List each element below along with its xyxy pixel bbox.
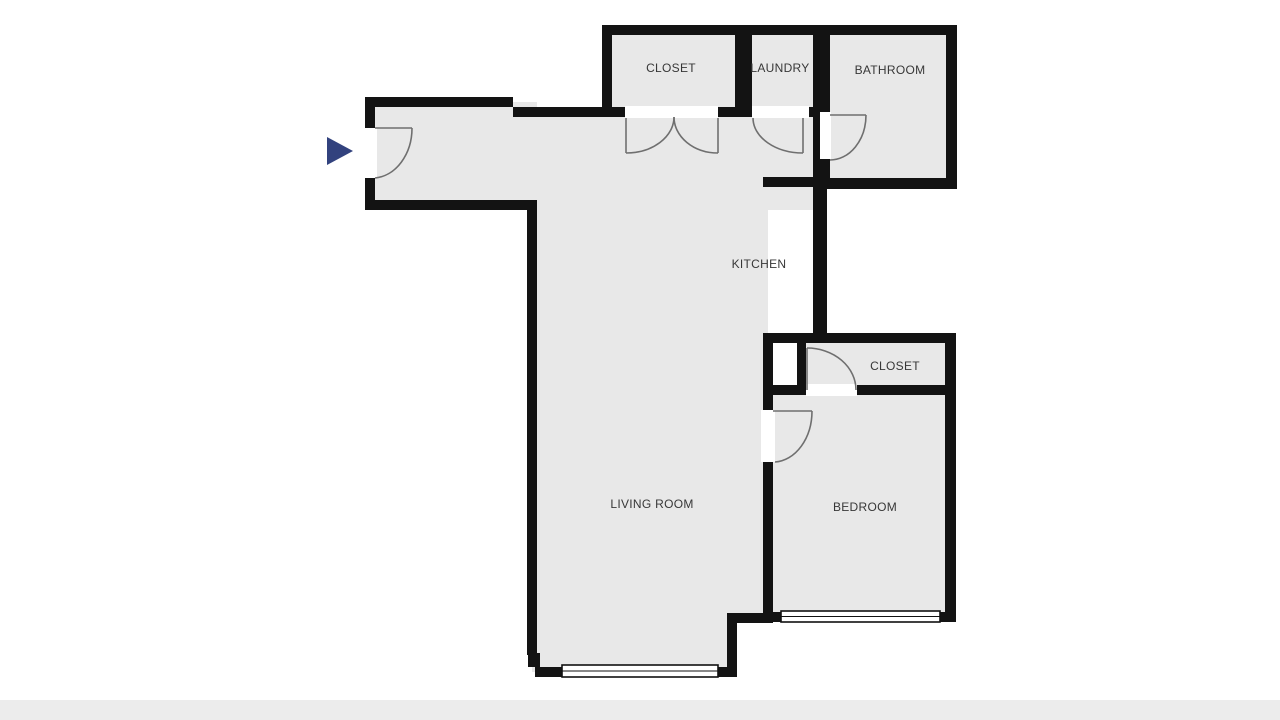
wall-entry-left-upper bbox=[365, 97, 375, 128]
label-closet-top: CLOSET bbox=[646, 61, 696, 75]
wall-bedroom-left bbox=[763, 333, 773, 622]
wall-entry-top-step bbox=[513, 107, 603, 117]
wall-living-bottom-left-step bbox=[528, 653, 540, 667]
door-gap-closet2 bbox=[806, 384, 857, 396]
wall-bathroom-top bbox=[820, 25, 957, 35]
label-bedroom: BEDROOM bbox=[833, 500, 897, 514]
wall-bedroom-right bbox=[945, 333, 956, 622]
wall-closet2-bottom bbox=[763, 385, 956, 395]
wall-laundry-bathroom-divider bbox=[813, 25, 830, 117]
label-laundry: LAUNDRY bbox=[750, 61, 809, 75]
label-kitchen: KITCHEN bbox=[732, 257, 787, 271]
label-closet-bedroom: CLOSET bbox=[870, 359, 920, 373]
door-gap-bathroom bbox=[820, 112, 831, 159]
door-gap-entry bbox=[363, 128, 377, 178]
door-gap-closet-top bbox=[625, 106, 718, 118]
wall-closet-left bbox=[602, 25, 612, 117]
footer-strip bbox=[0, 700, 1280, 720]
shaft-niche bbox=[773, 343, 797, 385]
wall-bathroom-left-lower bbox=[820, 158, 830, 188]
wall-entry-left-lower bbox=[365, 178, 375, 210]
label-living-room: LIVING ROOM bbox=[610, 497, 693, 511]
wall-closet2-top bbox=[763, 333, 956, 343]
wall-entry-top bbox=[365, 97, 513, 107]
wall-living-left bbox=[527, 200, 537, 655]
entrance-arrow-icon bbox=[327, 137, 353, 165]
door-gap-bedroom bbox=[761, 410, 775, 462]
wall-kitchen-stub bbox=[763, 177, 816, 187]
label-bathroom: BATHROOM bbox=[855, 63, 926, 77]
floor-plan-screen: CLOSET LAUNDRY BATHROOM KITCHEN CLOSET L… bbox=[0, 0, 1280, 720]
room-floor-bathroom bbox=[825, 30, 952, 184]
room-floor-living-bottom bbox=[532, 615, 732, 672]
door-gap-laundry bbox=[752, 106, 809, 118]
wall-entry-bottom bbox=[365, 200, 537, 210]
room-floor-kitchen-top bbox=[532, 112, 822, 210]
wall-bathroom-bottom bbox=[820, 178, 957, 189]
room-floor-entry bbox=[370, 102, 537, 205]
floor-plan-canvas: CLOSET LAUNDRY BATHROOM KITCHEN CLOSET L… bbox=[0, 0, 1280, 720]
wall-bathroom-right bbox=[946, 25, 957, 189]
wall-shaft-right bbox=[797, 343, 806, 395]
wall-top-closet-laundry bbox=[602, 25, 823, 35]
